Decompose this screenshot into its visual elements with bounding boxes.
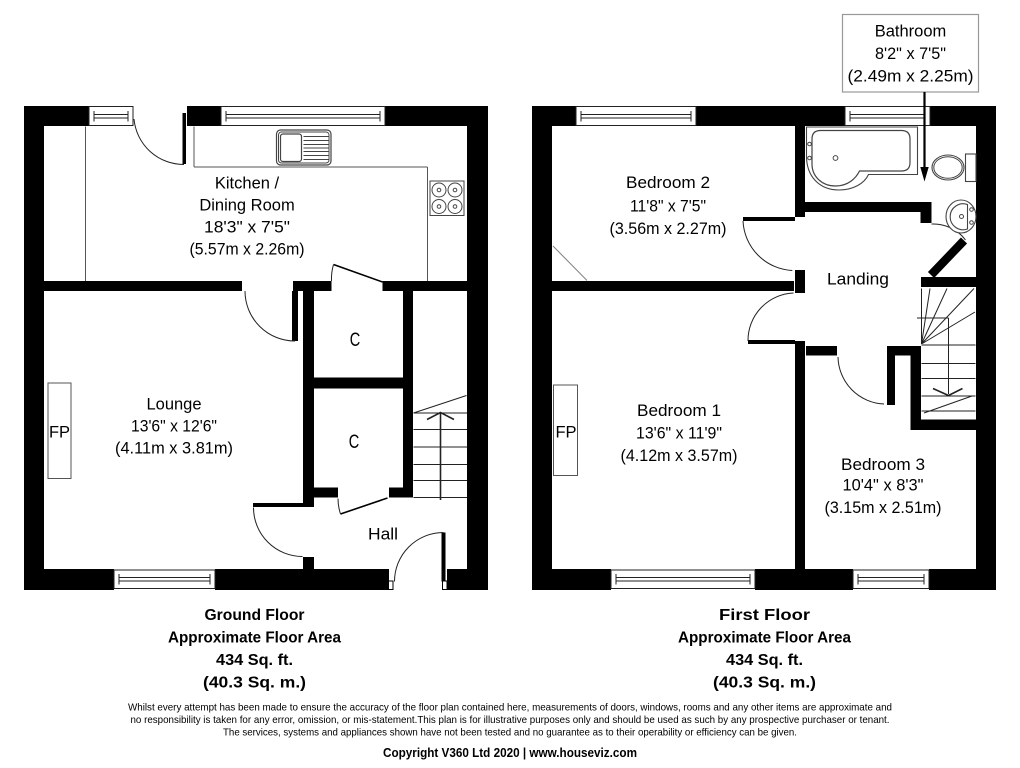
svg-text:FP: FP [555,424,576,442]
svg-text:Whilst every attempt has been: Whilst every attempt has been made to en… [128,702,892,714]
svg-text:Dining Room: Dining Room [199,197,294,215]
svg-text:10'4" x 8'3": 10'4" x 8'3" [843,477,924,495]
svg-text:(3.56m x 2.27m): (3.56m x 2.27m) [610,220,727,238]
svg-text:C: C [349,431,360,453]
svg-text:(5.57m x 2.26m): (5.57m x 2.26m) [190,241,305,259]
svg-text:FP: FP [49,424,70,442]
svg-text:(3.15m x 2.51m): (3.15m x 2.51m) [825,499,942,517]
svg-text:13'6" x 12'6": 13'6" x 12'6" [131,418,217,436]
svg-text:Ground Floor: Ground Floor [205,607,305,624]
svg-text:(2.49m x 2.25m): (2.49m x 2.25m) [848,68,974,86]
svg-text:The services, systems and appl: The services, systems and appliances sho… [223,727,797,739]
svg-text:Approximate Floor Area: Approximate Floor Area [168,630,341,647]
svg-text:Lounge: Lounge [146,396,201,414]
svg-text:Landing: Landing [827,271,889,289]
svg-text:Approximate Floor Area: Approximate Floor Area [678,630,851,647]
svg-text:Kitchen /: Kitchen / [215,175,280,193]
svg-text:C: C [350,329,361,351]
svg-text:Hall: Hall [368,526,398,544]
svg-text:434 Sq. ft.: 434 Sq. ft. [726,652,803,669]
svg-text:First Floor: First Floor [719,607,810,624]
svg-text:(40.3 Sq. m.): (40.3 Sq. m.) [203,675,306,692]
svg-text:Bedroom 2: Bedroom 2 [626,174,710,192]
svg-text:13'6" x 11'9": 13'6" x 11'9" [636,425,722,443]
svg-text:(40.3 Sq. m.): (40.3 Sq. m.) [713,675,816,692]
svg-text:434 Sq. ft.: 434 Sq. ft. [216,652,293,669]
svg-text:Bedroom 1: Bedroom 1 [637,402,721,420]
svg-text:11'8" x 7'5": 11'8" x 7'5" [630,198,706,216]
svg-text:Bedroom 3: Bedroom 3 [841,456,925,474]
svg-text:8'2" x 7'5": 8'2" x 7'5" [875,45,946,63]
svg-text:Bathroom: Bathroom [875,23,947,41]
svg-text:Copyright V360 Ltd 2020 | www.: Copyright V360 Ltd 2020 | www.houseviz.c… [383,745,637,760]
svg-text:no responsibility is taken for: no responsibility is taken for any error… [131,714,890,726]
svg-text:18'3" x 7'5": 18'3" x 7'5" [204,219,290,237]
svg-text:(4.11m x 3.81m): (4.11m x 3.81m) [115,440,233,458]
svg-text:(4.12m x 3.57m): (4.12m x 3.57m) [621,447,738,465]
